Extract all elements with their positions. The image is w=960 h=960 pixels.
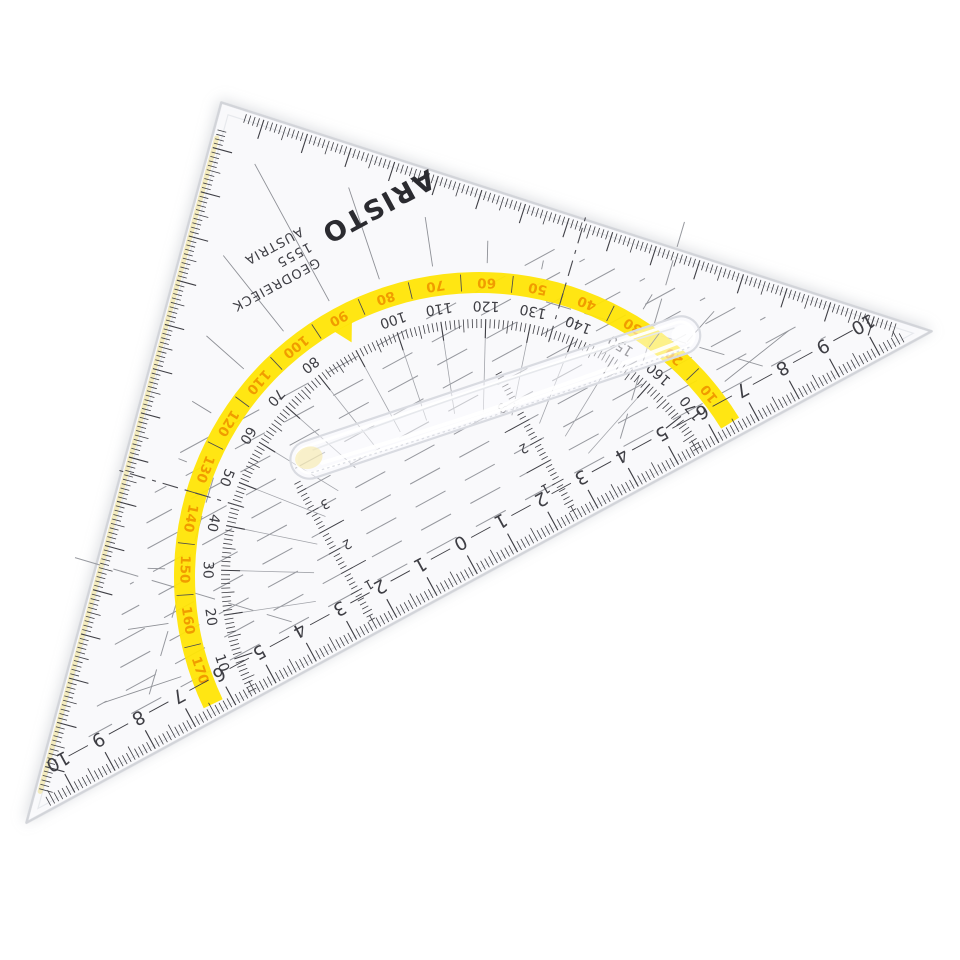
numeral: 120	[473, 297, 500, 314]
numeral: 70	[425, 276, 446, 295]
geodreieck-photo: 1231231020304050607080100110120130140150…	[0, 0, 960, 960]
geodreieck: 1231231020304050607080100110120130140150…	[0, 0, 932, 823]
numeral: 30	[199, 561, 215, 579]
numeral: 60	[477, 274, 496, 290]
numeral: 150	[176, 555, 193, 584]
photo-canvas: 1231231020304050607080100110120130140150…	[0, 0, 960, 960]
numeral: 20	[201, 607, 219, 627]
